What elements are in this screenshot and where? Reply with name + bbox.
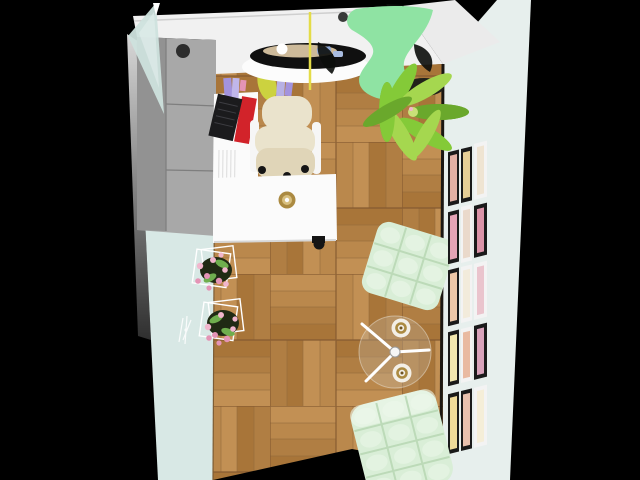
- room-render-canvas: [0, 0, 640, 480]
- gallery-frame: [474, 141, 487, 200]
- frame-art: [477, 327, 484, 375]
- wardrobe-knob: [176, 44, 190, 58]
- gallery-frame: [461, 204, 472, 263]
- flower: [197, 263, 203, 269]
- frame-art: [450, 154, 457, 202]
- desk-top: [213, 174, 337, 243]
- white-gold-cup-2: [393, 364, 412, 383]
- gallery-wall: [448, 141, 487, 455]
- plant-bud: [409, 107, 413, 111]
- frame-art: [463, 269, 470, 319]
- frame-art: [450, 396, 457, 450]
- frame-art: [450, 272, 457, 322]
- white-plate: [277, 44, 288, 55]
- flower: [216, 340, 221, 345]
- flower: [223, 281, 229, 287]
- flower: [232, 316, 237, 321]
- pink-book: [239, 80, 246, 92]
- frame-art: [477, 265, 484, 315]
- blue-dish: [333, 51, 343, 57]
- desk-handle-knob: [314, 239, 325, 250]
- chair-shadow: [338, 12, 348, 22]
- flower: [206, 285, 211, 290]
- gallery-frame: [461, 388, 472, 451]
- room-render: [0, 0, 640, 480]
- gallery-frame: [461, 264, 472, 323]
- gallery-frame: [474, 261, 487, 320]
- glass-tripod-coffee-table: [359, 316, 431, 388]
- frame-art: [463, 393, 470, 447]
- chair-headrest: [262, 96, 312, 130]
- gallery-frame: [448, 150, 459, 207]
- chair-caster: [301, 165, 309, 173]
- flower: [195, 278, 201, 284]
- flower: [222, 267, 228, 273]
- gallery-frame: [448, 392, 459, 455]
- white-desk: [213, 174, 337, 250]
- gallery-frame: [448, 330, 459, 387]
- gallery-frame: [461, 146, 472, 203]
- flower: [230, 326, 236, 332]
- cup-center: [401, 372, 404, 375]
- frame-art: [477, 389, 484, 443]
- flower: [212, 332, 218, 338]
- flower: [224, 336, 230, 342]
- gallery-frame: [474, 203, 487, 258]
- white-gold-cup-1: [392, 319, 411, 338]
- frame-art: [450, 214, 457, 260]
- sconce-dot: [184, 328, 187, 331]
- frame-art: [450, 334, 457, 382]
- table-hub: [390, 347, 400, 357]
- gold-cup-hole: [285, 198, 289, 202]
- flower: [206, 335, 212, 341]
- frame-art: [463, 331, 470, 379]
- gallery-frame: [474, 323, 487, 380]
- chair-caster: [258, 166, 266, 174]
- flower: [218, 252, 223, 257]
- flower: [204, 273, 210, 279]
- flower: [216, 278, 222, 284]
- gallery-frame: [448, 210, 459, 265]
- gallery-frame: [474, 385, 487, 448]
- frame-art: [463, 151, 470, 199]
- flower: [210, 257, 216, 263]
- flower: [205, 324, 211, 330]
- flower: [218, 312, 224, 318]
- gallery-frame: [448, 268, 459, 327]
- frame-art: [477, 207, 484, 253]
- frame-art: [463, 209, 470, 259]
- cup-center: [400, 327, 403, 330]
- frame-art: [477, 145, 484, 195]
- gallery-frame: [461, 326, 472, 383]
